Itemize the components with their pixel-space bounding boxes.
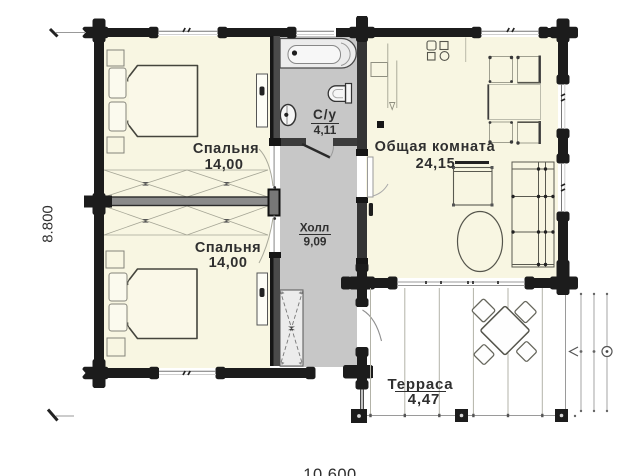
svg-text:Спальня: Спальня (193, 141, 259, 157)
svg-text:С/у: С/у (313, 107, 337, 122)
svg-text:Общая комната: Общая комната (375, 139, 496, 155)
svg-text:10.600: 10.600 (303, 466, 356, 476)
svg-text:8.800: 8.800 (39, 205, 56, 243)
svg-text:4,47: 4,47 (408, 391, 440, 408)
svg-text:4,11: 4,11 (314, 123, 337, 137)
svg-text:Спальня: Спальня (195, 240, 261, 256)
svg-text:Холл: Холл (300, 221, 330, 235)
svg-text:14,00: 14,00 (205, 157, 244, 173)
svg-text:14,00: 14,00 (209, 255, 248, 271)
svg-text:24,15: 24,15 (416, 156, 456, 172)
svg-text:9,09: 9,09 (304, 235, 327, 249)
